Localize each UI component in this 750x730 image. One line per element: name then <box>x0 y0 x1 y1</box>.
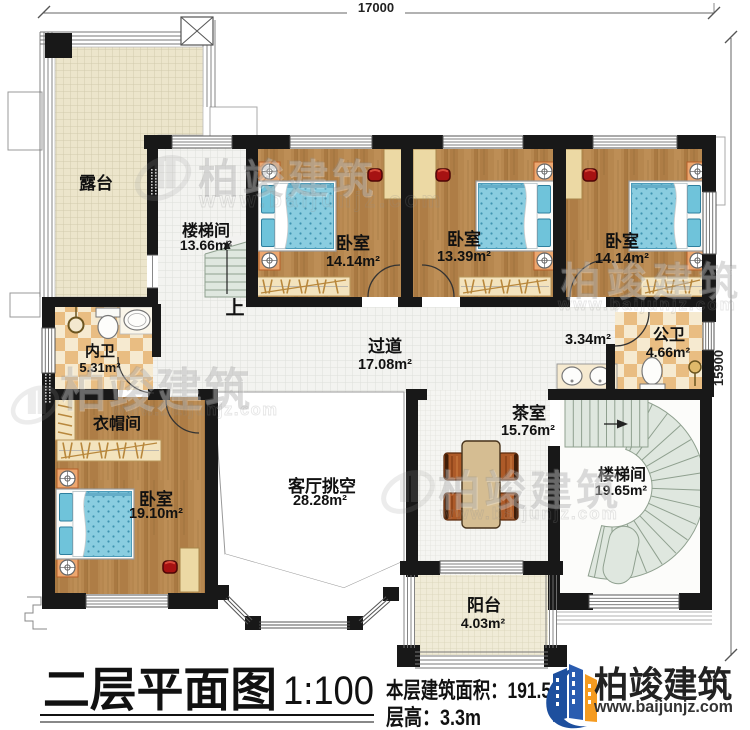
svg-text:14.14m²: 14.14m² <box>326 254 380 270</box>
svg-text:3.34m²: 3.34m² <box>565 332 611 348</box>
svg-text:卧室: 卧室 <box>447 229 481 249</box>
svg-text:本层建筑面积：191.5: 本层建筑面积：191.5 <box>386 678 551 703</box>
svg-text:茶室: 茶室 <box>512 403 546 423</box>
svg-text:柏: 柏 <box>60 364 106 416</box>
svg-text:www.baijunjz.com: www.baijunjz.com <box>439 504 619 523</box>
svg-text:www.baijunjz.com: www.baijunjz.com <box>557 295 737 314</box>
svg-text:4.66m²: 4.66m² <box>646 344 691 360</box>
svg-text:二层平面图: 二层平面图 <box>43 663 277 716</box>
svg-text:上: 上 <box>225 297 244 319</box>
svg-text:17000: 17000 <box>358 0 394 15</box>
svg-text:4.03m²: 4.03m² <box>461 615 506 631</box>
svg-text:卧室: 卧室 <box>336 233 370 253</box>
svg-text:层高：3.3m: 层高：3.3m <box>386 705 481 730</box>
svg-text:过道: 过道 <box>368 336 402 356</box>
svg-text:13.39m²: 13.39m² <box>437 249 491 265</box>
svg-text:露台: 露台 <box>79 173 113 193</box>
svg-text:www.baijunjz.com: www.baijunjz.com <box>111 401 278 419</box>
svg-text:阳台: 阳台 <box>467 595 501 615</box>
svg-text:1:100: 1:100 <box>283 669 374 713</box>
svg-text:卧室: 卧室 <box>605 231 639 251</box>
svg-text:28.28m²: 28.28m² <box>293 493 347 509</box>
svg-text:内卫: 内卫 <box>85 342 115 360</box>
svg-text:15.76m²: 15.76m² <box>501 423 555 439</box>
svg-text:19.10m²: 19.10m² <box>129 506 183 522</box>
svg-text:www.baijunjz.com: www.baijunjz.com <box>198 189 444 212</box>
svg-text:13.66m²: 13.66m² <box>180 237 232 253</box>
svg-text:www.baijunjz.com: www.baijunjz.com <box>593 697 733 716</box>
svg-text:17.08m²: 17.08m² <box>358 357 412 373</box>
svg-text:公卫: 公卫 <box>653 326 685 344</box>
